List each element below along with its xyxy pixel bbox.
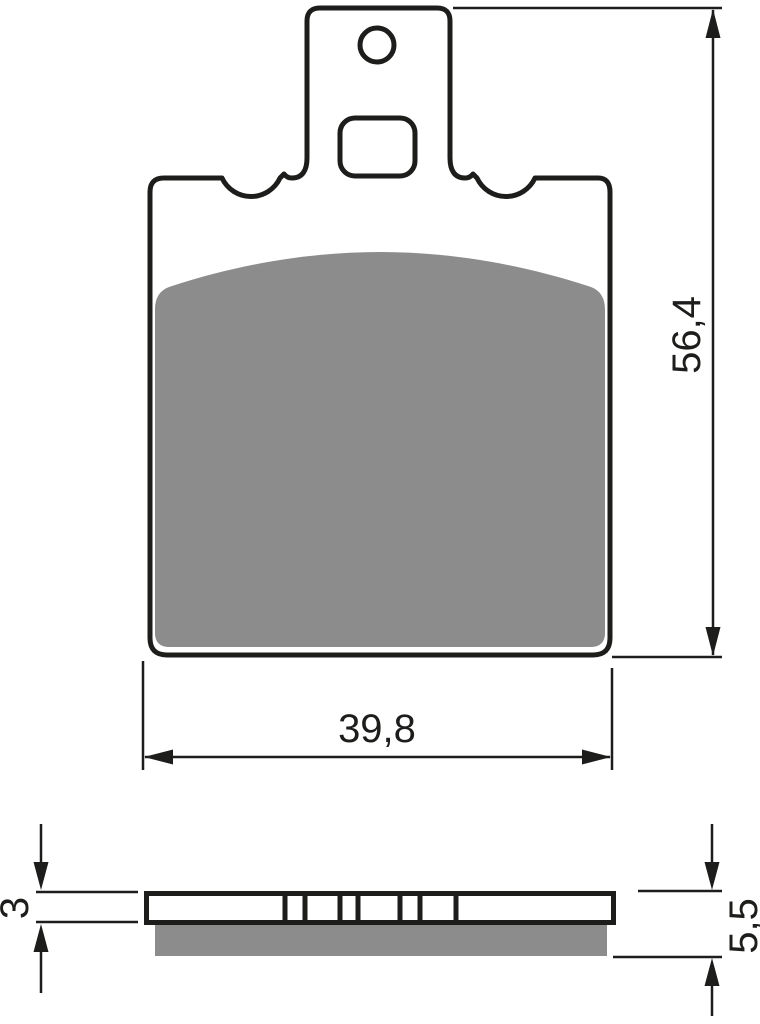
- dimension-width: 39,8: [143, 661, 612, 770]
- brake-pad-technical-drawing: 56,4 39,8 3: [0, 0, 760, 1024]
- dimension-label-width: 39,8: [338, 707, 416, 751]
- arrowhead-right: [582, 750, 611, 765]
- rectangular-hole: [340, 118, 415, 176]
- dimension-label-backplate-thickness: 3: [0, 897, 37, 919]
- side-view: [147, 893, 614, 956]
- dimension-backplate-thickness: 3: [0, 824, 138, 993]
- arrowhead-down: [34, 862, 49, 890]
- friction-material-front: [155, 252, 605, 647]
- arrowhead-up: [706, 9, 721, 38]
- arrowhead-up: [34, 924, 49, 952]
- dimension-label-height: 56,4: [665, 296, 709, 374]
- arrowhead-up: [705, 958, 720, 986]
- front-view: [150, 8, 610, 655]
- arrowhead-down: [705, 862, 720, 890]
- backplate-side: [147, 894, 614, 923]
- dimension-total-thickness: 5,5: [613, 824, 760, 1016]
- arrowhead-left: [144, 750, 173, 765]
- friction-material-side: [155, 925, 607, 956]
- arrowhead-down: [706, 627, 721, 656]
- round-pin-hole: [360, 28, 394, 62]
- dimension-label-total-thickness: 5,5: [722, 898, 760, 954]
